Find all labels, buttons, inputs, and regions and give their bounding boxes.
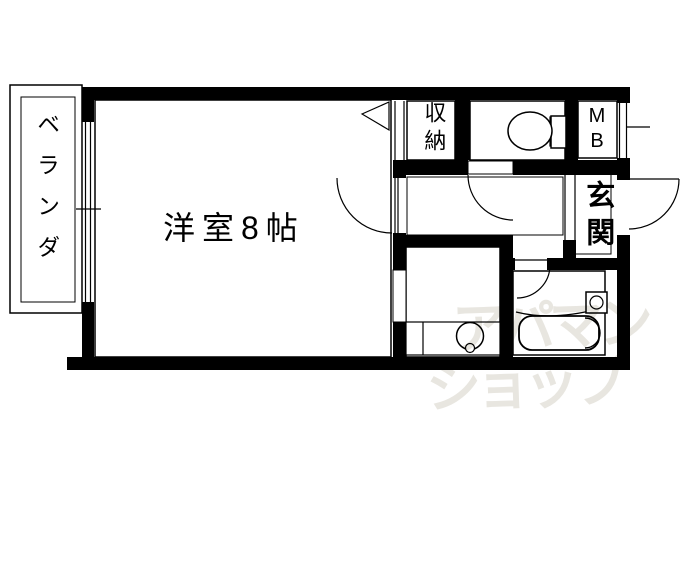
watermark-line2: ショップ [425,337,624,424]
closet-label: 収納 [420,101,446,157]
toilet-icon [508,112,566,150]
washroom-opening [393,270,406,322]
meter-box-label: M B [586,104,608,154]
floor-plan: ベランダ 洋室8帖 収納 M B 玄関 アパマン ショップ [0,0,690,575]
main-room-label: 洋室8帖 [163,209,305,247]
entrance-label: 玄関 [580,180,615,254]
balcony-label: ベランダ [32,112,60,276]
